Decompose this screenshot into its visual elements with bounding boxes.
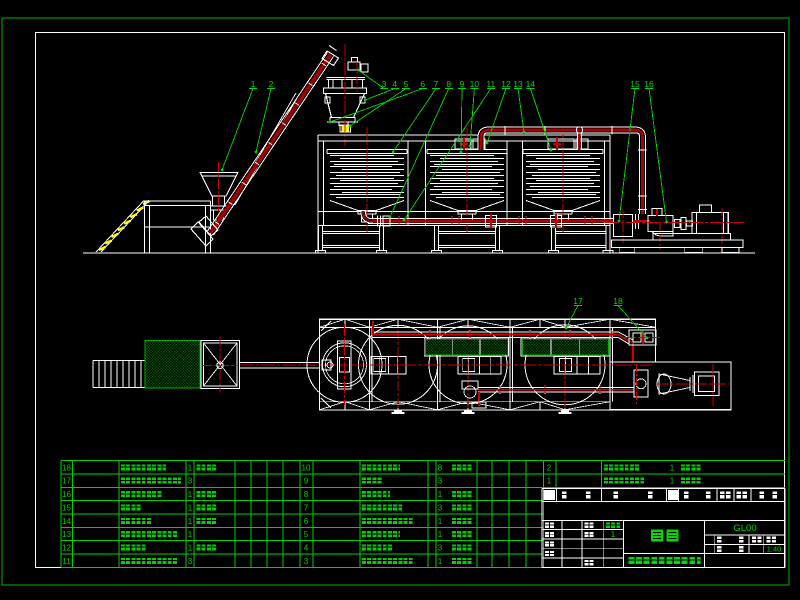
- svg-text:4: 4: [304, 543, 309, 552]
- svg-text:14: 14: [62, 517, 71, 526]
- svg-text:5: 5: [304, 530, 309, 539]
- svg-text:18: 18: [613, 296, 623, 306]
- svg-text:3: 3: [438, 477, 443, 486]
- svg-text:15: 15: [62, 503, 71, 512]
- svg-text:1: 1: [251, 79, 256, 89]
- svg-text:1: 1: [188, 517, 193, 526]
- svg-text:16: 16: [644, 79, 654, 89]
- svg-text:1: 1: [670, 477, 675, 486]
- svg-text:3: 3: [188, 557, 193, 566]
- svg-text:18: 18: [62, 463, 71, 472]
- svg-text:1: 1: [547, 477, 552, 486]
- svg-text:12: 12: [501, 79, 511, 89]
- svg-text:8: 8: [438, 463, 443, 472]
- svg-text:17: 17: [62, 477, 71, 486]
- svg-text:3: 3: [438, 503, 443, 512]
- svg-text:7: 7: [304, 503, 309, 512]
- svg-text:15: 15: [630, 79, 640, 89]
- svg-text:1: 1: [438, 557, 443, 566]
- svg-text:3: 3: [304, 557, 309, 566]
- svg-text:1:40: 1:40: [767, 545, 782, 554]
- svg-text:11: 11: [62, 557, 71, 566]
- svg-text:1: 1: [438, 530, 443, 539]
- svg-text:1: 1: [438, 490, 443, 499]
- svg-text:17: 17: [573, 296, 583, 306]
- svg-text:1: 1: [438, 517, 443, 526]
- svg-text:9: 9: [460, 79, 465, 89]
- svg-text:1: 1: [670, 463, 675, 472]
- svg-text:6: 6: [304, 517, 309, 526]
- svg-text:8: 8: [446, 79, 451, 89]
- svg-text:1: 1: [188, 530, 193, 539]
- svg-text:GL00: GL00: [733, 523, 756, 534]
- svg-text:3: 3: [438, 543, 443, 552]
- svg-text:8: 8: [304, 490, 309, 499]
- svg-text:3: 3: [188, 477, 193, 486]
- svg-text:13: 13: [62, 530, 71, 539]
- svg-text:1: 1: [188, 490, 193, 499]
- svg-text:12: 12: [62, 543, 71, 552]
- svg-text:2: 2: [269, 79, 274, 89]
- svg-text:16: 16: [62, 490, 71, 499]
- svg-text:9: 9: [304, 477, 309, 486]
- svg-text:7: 7: [434, 79, 439, 89]
- svg-text:4: 4: [392, 79, 397, 89]
- svg-text:10: 10: [470, 79, 480, 89]
- svg-text:1: 1: [188, 543, 193, 552]
- svg-text:11: 11: [486, 79, 495, 89]
- svg-text:6: 6: [420, 79, 425, 89]
- svg-text:1: 1: [611, 530, 616, 539]
- svg-text:10: 10: [302, 463, 311, 472]
- svg-text:1: 1: [188, 463, 193, 472]
- svg-text:2: 2: [547, 463, 552, 472]
- svg-text:5: 5: [404, 79, 409, 89]
- svg-text:1: 1: [188, 503, 193, 512]
- svg-text:14: 14: [526, 79, 536, 89]
- svg-text:13: 13: [513, 79, 523, 89]
